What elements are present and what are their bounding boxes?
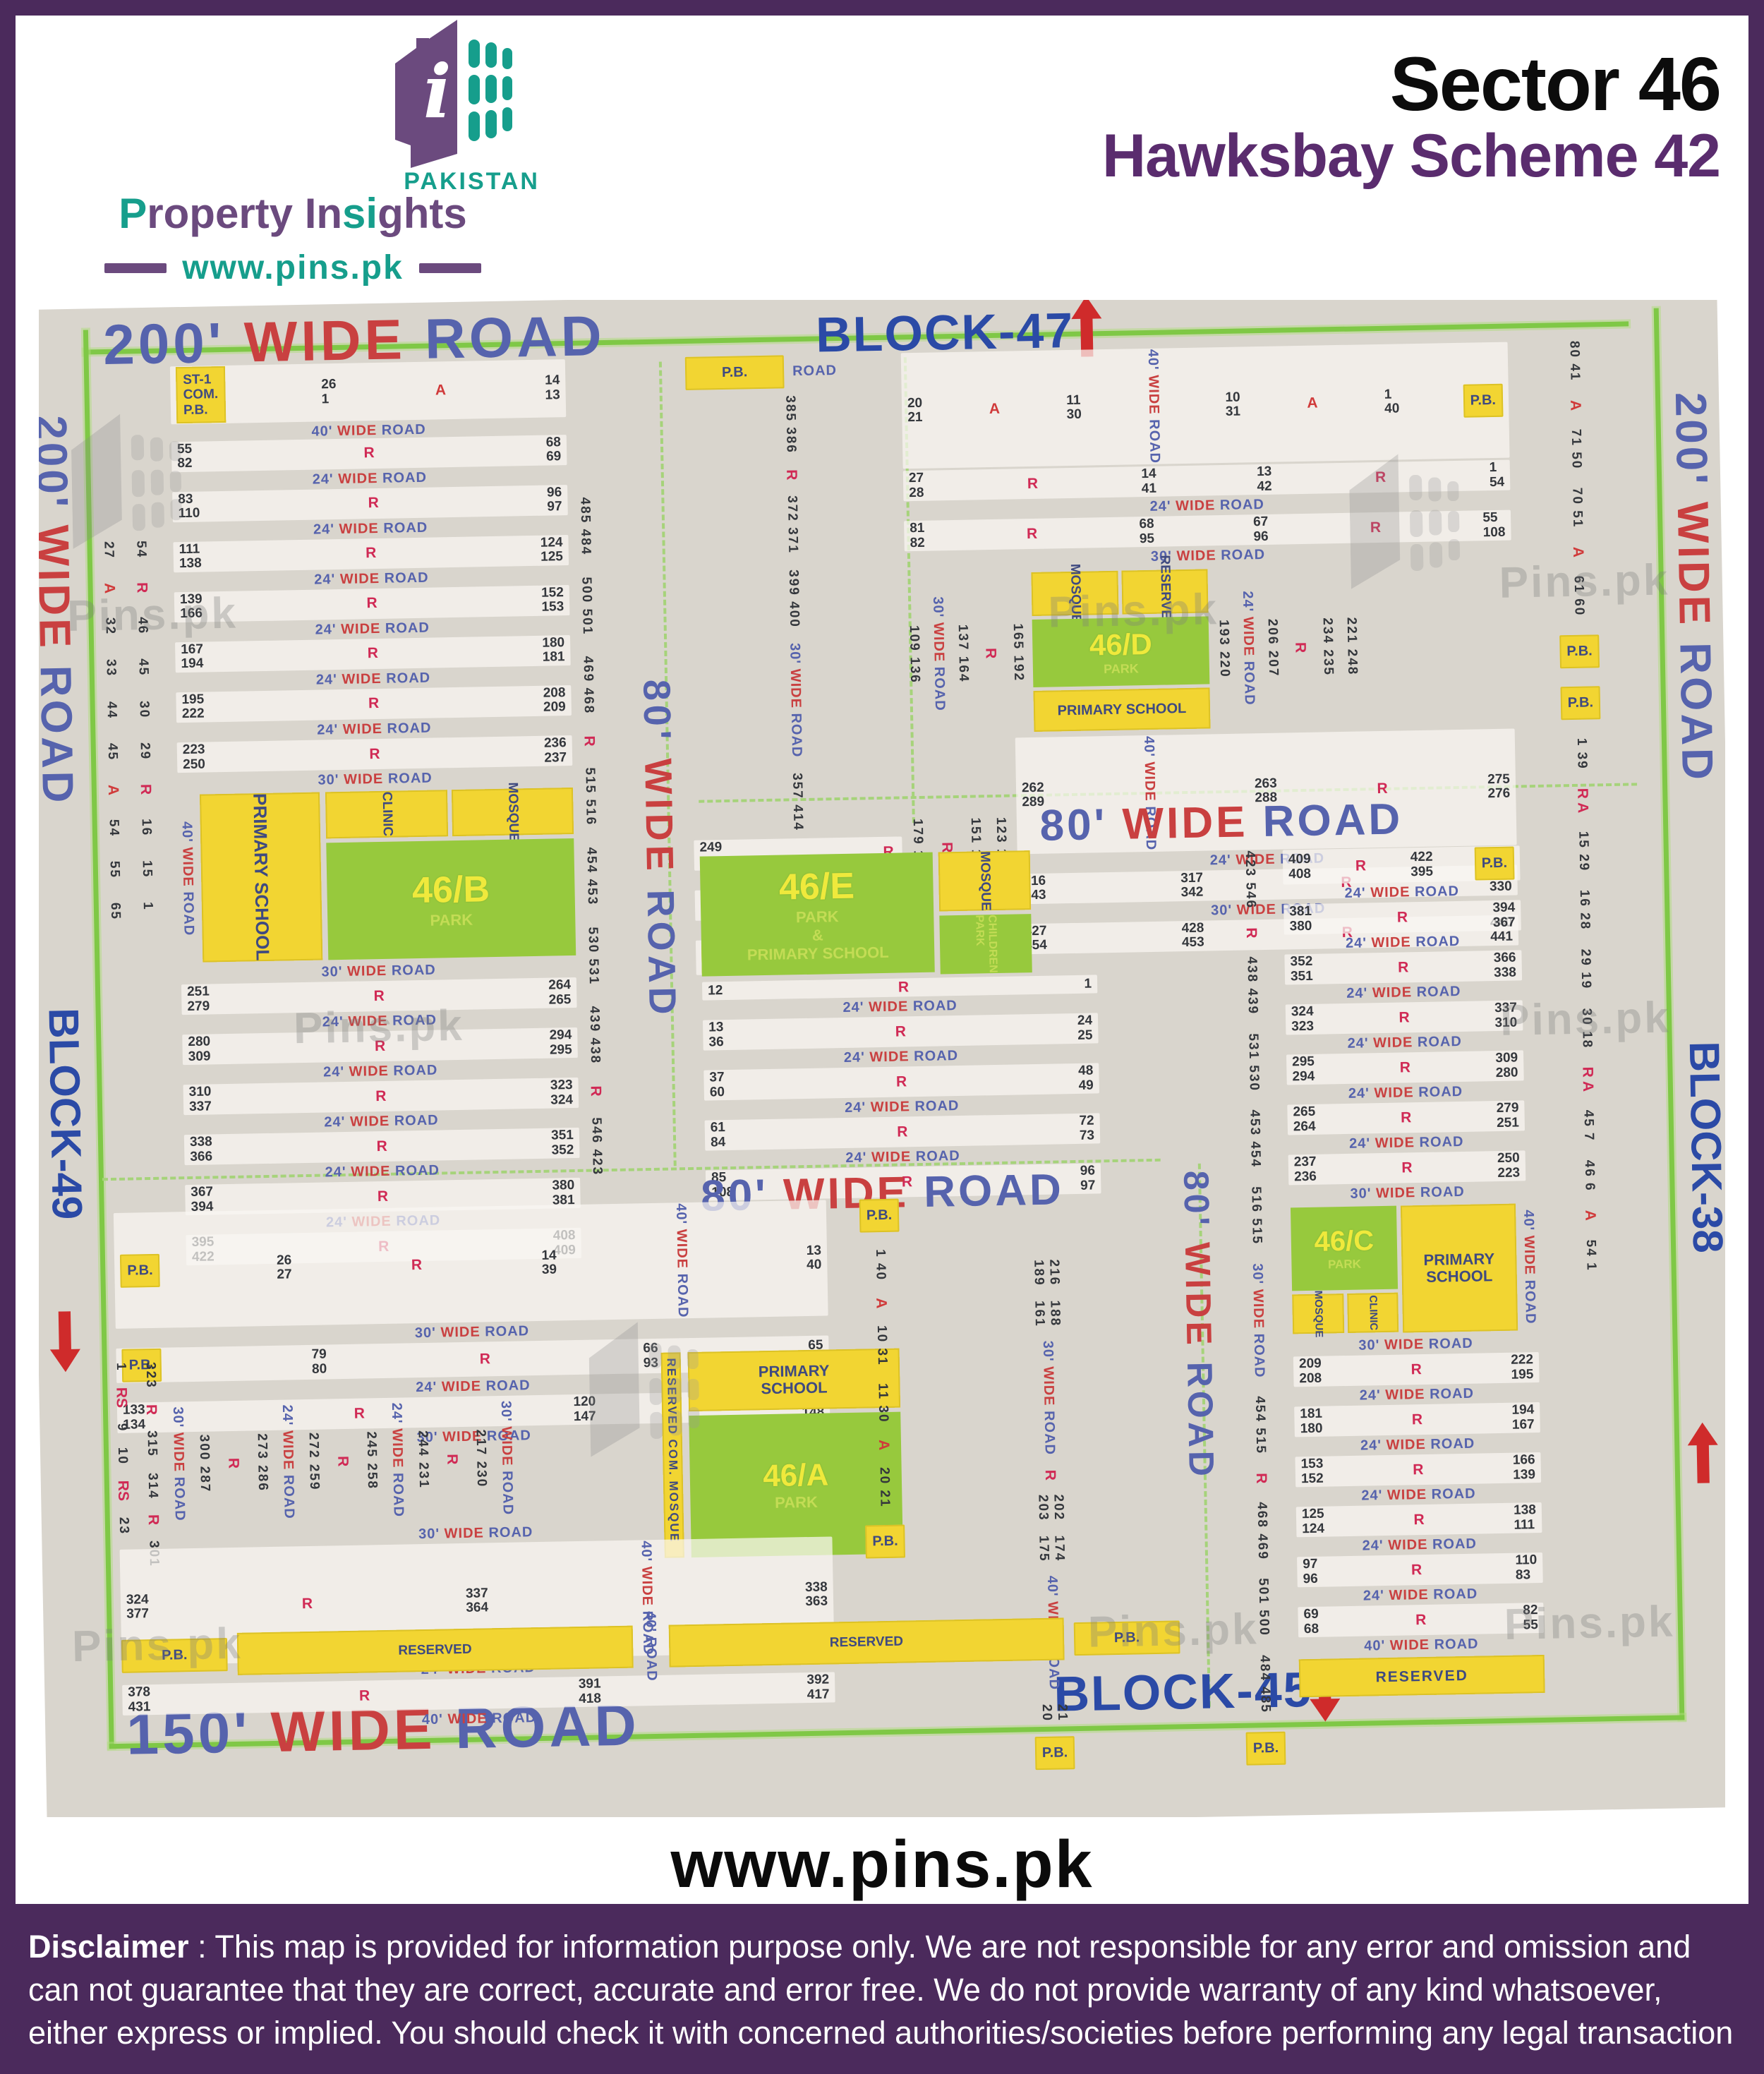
road-label: 40' WIDE ROAD	[178, 795, 197, 963]
road-label-part: 24'	[1360, 1387, 1381, 1404]
plot-number: 223	[183, 742, 205, 757]
plot-number: 152	[1301, 1471, 1324, 1486]
letter-r: R	[356, 1687, 373, 1704]
plot-number: 377	[126, 1607, 149, 1622]
road-label-part: 40'	[422, 1712, 443, 1728]
plot-number-pair: 15	[139, 860, 155, 879]
plot-row: 409408R422395P.B.	[1283, 845, 1521, 884]
road-label-part: 24'	[324, 1114, 345, 1131]
plot-numbers: 352351	[1290, 955, 1312, 984]
plot-number: 110	[1515, 1553, 1537, 1568]
plot-number: 27	[909, 471, 924, 486]
road-label-part: ROAD	[390, 1163, 440, 1179]
plot-number: 280	[188, 1035, 210, 1049]
letter-a: A	[1578, 1210, 1601, 1222]
plot-number: 323	[550, 1078, 573, 1093]
road-label-part: ROAD	[1427, 1536, 1477, 1553]
plot-number: 82	[910, 536, 925, 551]
plot-numbers: 337310	[1494, 1001, 1517, 1031]
page-subtitle: Hawksbay Scheme 42	[1102, 121, 1720, 191]
nw-plot-rows-upper: 5582R686924' WIDE ROAD83110R969724' WIDE…	[171, 435, 573, 790]
plot-number: 54	[1490, 475, 1505, 490]
road-label-part: ROAD	[1216, 547, 1265, 563]
plot-number-pair: 245 258	[363, 1431, 380, 1490]
road-label-part: ROAD	[1411, 934, 1461, 950]
dash-right	[419, 263, 481, 273]
plot-numbers: 409408	[1288, 852, 1311, 882]
road-label-part: 24'	[313, 471, 334, 488]
letter-r: R	[1039, 1469, 1061, 1481]
plot-number-pair: 500 501	[578, 577, 595, 635]
plot-number-pair: 234 235	[1319, 617, 1336, 676]
road-label-part: ROAD	[908, 1165, 1064, 1217]
plot-number: 139	[1513, 1468, 1535, 1483]
road-label: 24' WIDE ROAD	[1297, 1535, 1542, 1555]
road-label-part: WIDE	[866, 1099, 910, 1115]
plot-number: 338	[1494, 965, 1516, 980]
sw-rotated-column: P.B.1 40A10 3111 30A20 21P.B.	[837, 1198, 930, 1665]
plot-numbers: 265264	[1293, 1105, 1315, 1135]
plot-numbers: 180181	[542, 636, 564, 665]
road-label: 24' WIDE ROAD	[279, 1405, 297, 1520]
road-label-part: 24'	[389, 1403, 405, 1424]
road-label-part: WIDE	[864, 999, 908, 1015]
road-label: 40' ROAD	[642, 1611, 660, 1682]
plot-number: 61	[711, 1121, 726, 1135]
road-label-part: 24'	[1344, 885, 1365, 901]
plot-row: 125124R138111	[1296, 1502, 1542, 1537]
plot-number: 14	[541, 1248, 557, 1263]
plot-number: 378	[128, 1685, 150, 1700]
plot-numbers: 6796	[1253, 515, 1269, 544]
plot-number: 68	[546, 435, 562, 450]
park-46c-box: 46/C PARK	[1291, 1206, 1398, 1291]
plot-numbers: 428453	[1181, 921, 1204, 951]
brand-name-part: P	[119, 190, 147, 237]
plot-number: 167	[181, 642, 203, 657]
road-label-part: WIDE	[1379, 1337, 1424, 1353]
road-label-part: 30'	[1350, 1186, 1371, 1202]
plot-numbers: 111138	[179, 542, 201, 572]
road-label-part: WIDE	[498, 1422, 514, 1466]
road-label-part: ROAD	[1429, 1586, 1478, 1603]
plot-numbers: 166139	[1513, 1453, 1535, 1483]
letter-r: R	[366, 745, 383, 762]
plot-number: 138	[179, 557, 202, 572]
plot-number: 180	[1300, 1421, 1323, 1436]
plot-row: 6968R8255	[1298, 1603, 1544, 1637]
road-label-part: 24'	[1349, 1135, 1370, 1152]
plot-numbers: 324377	[126, 1593, 149, 1622]
road-label-part: ROAD	[382, 721, 432, 737]
plot-numbers: 2021	[907, 396, 923, 425]
park-label: PARK	[430, 911, 473, 930]
brand-url: www.pins.pk	[182, 248, 404, 287]
road-label-part: ROAD	[180, 886, 196, 936]
plot-number-pair: COM.	[665, 1440, 680, 1477]
letter-r: R	[1409, 1411, 1426, 1428]
road-label: 24' WIDE ROAD	[1283, 882, 1521, 902]
plot-row: 251279R264265	[181, 977, 577, 1015]
plot-number-pair: 21 20	[1039, 1704, 1070, 1723]
road-label: ROAD	[792, 363, 837, 380]
road-label-part: ROAD	[1430, 1636, 1479, 1653]
letter-r: R	[1398, 1109, 1415, 1126]
pb-box: P.B.	[1074, 1620, 1180, 1656]
park-46b-label: 46/B	[412, 868, 490, 912]
plot-number: 82	[177, 457, 193, 471]
plot-number: 338	[805, 1580, 828, 1595]
road-label-part: ROAD	[1248, 795, 1403, 846]
mosque-box: MOSQUE	[1292, 1294, 1344, 1334]
road-label-part: 200'	[39, 415, 77, 510]
road-label-part: ROAD	[380, 620, 430, 637]
plot-number: 48	[1078, 1064, 1094, 1079]
road-label-part: ROAD	[1427, 1486, 1476, 1502]
brand-name-part: roperty	[147, 190, 304, 237]
plot-number: 195	[1511, 1368, 1533, 1382]
road-label: 40' WIDE ROAD	[1298, 1635, 1544, 1655]
plot-numbers: 295294	[1292, 1055, 1315, 1085]
plot-numbers: 1441	[1141, 467, 1156, 496]
plot-number: 208	[1299, 1371, 1322, 1386]
plot-number: 111	[1514, 1518, 1535, 1533]
plot-number: 275	[1487, 773, 1510, 788]
plot-number: 249	[699, 840, 722, 855]
road-label-part: WIDE	[345, 1114, 389, 1130]
brand-name: Property Insights	[44, 189, 542, 238]
plot-number-pair: 15 29	[1575, 831, 1591, 872]
dash-left	[104, 263, 167, 273]
plot-number: 96	[547, 486, 562, 500]
park-46d-box: 46/D PARK	[1032, 617, 1210, 688]
road-label: 24' WIDE ROAD	[1285, 982, 1522, 1002]
plot-number: 138	[1514, 1503, 1536, 1518]
plot-number: 295	[1292, 1055, 1315, 1070]
plot-numbers: 250223	[1497, 1152, 1520, 1181]
road-label-part: ROAD	[39, 650, 82, 806]
park-label: PARK	[1104, 661, 1139, 677]
road-label-part: WIDE	[1521, 1231, 1538, 1275]
letter-r: R	[140, 1404, 162, 1415]
pb-box: P.B.	[1463, 383, 1503, 417]
road-label-part: WIDE	[787, 664, 804, 709]
plot-numbers: 11083	[1515, 1553, 1537, 1583]
plot-number-pair: 453 454	[1246, 1109, 1263, 1168]
plot-number-pair: 1	[140, 902, 155, 911]
plot-number: 55	[1523, 1618, 1539, 1633]
road-label-part: 80'	[1176, 1170, 1217, 1229]
plot-number-pair: 372 371	[784, 495, 801, 554]
plot-row: 153152R166139	[1295, 1452, 1541, 1487]
road-label-part: ROAD	[1426, 1436, 1475, 1452]
children-park-box: CHILDREN PARK	[939, 915, 1032, 975]
arrow-up-icon	[1070, 300, 1103, 357]
road-label-part: ROAD	[911, 1148, 960, 1164]
plot-number: 13	[545, 388, 560, 403]
road-label-part: WIDE	[1040, 1362, 1056, 1406]
plot-number-pair: 1	[113, 1363, 128, 1372]
letter-r: R	[1413, 1612, 1430, 1629]
plot-number-pair: 221 248	[1343, 617, 1360, 675]
plot-number: 95	[1140, 532, 1155, 547]
plot-number-pair: 174 175	[1035, 1535, 1067, 1562]
plot-number: 352	[1290, 955, 1312, 970]
plot-number-pair: 1 40	[872, 1249, 888, 1281]
primary-school-label: SCHOOL	[251, 882, 273, 961]
road-label-part: 24'	[845, 1099, 866, 1116]
primary-school-label: PRIMARY	[759, 1362, 830, 1380]
plot-number-pair: 193 220	[1216, 620, 1233, 678]
plot-numbers: 264265	[548, 978, 571, 1008]
pb-box: P.B.	[121, 1638, 228, 1673]
road-label-part: 30'	[498, 1401, 514, 1422]
road-label-part: 40'	[643, 1611, 659, 1632]
plot-number: 310	[1494, 1015, 1517, 1030]
letter-r: R	[1367, 519, 1384, 536]
road-label-part: WIDE	[332, 423, 377, 439]
plot-row: 338366R351352	[184, 1128, 580, 1165]
plot-number: 280	[1496, 1066, 1518, 1080]
plot-numbers: 394367	[1492, 901, 1515, 931]
plot-row: 352351R366338	[1284, 950, 1522, 984]
plot-row: 167194R180181	[175, 635, 571, 673]
letter-r-a: R A	[1571, 788, 1594, 813]
plot-numbers: 7273	[1079, 1114, 1094, 1143]
plot-number-pair: 55	[107, 861, 122, 879]
plot-row: 381380R394367	[1283, 900, 1521, 934]
plot-row: 209208R222195	[1293, 1352, 1540, 1387]
plot-number: 1	[1084, 977, 1092, 991]
road-label-part: ROAD	[1415, 1184, 1465, 1200]
plot-number-pair: 65	[107, 903, 123, 921]
road-label-part: WIDE	[436, 1325, 481, 1341]
plot-number-pair: 300 287	[196, 1435, 213, 1493]
plot-number: 363	[805, 1595, 828, 1610]
road-label-part: WIDE	[342, 963, 387, 979]
plot-numbers: 5582	[177, 442, 193, 471]
road-label-part: WIDE	[1382, 1437, 1426, 1453]
plot-number: 309	[1495, 1051, 1518, 1066]
plot-numbers: 209208	[1299, 1357, 1322, 1387]
road-label-part: ROAD	[639, 874, 684, 1019]
plot-number-pair: 10	[114, 1447, 130, 1466]
plot-number: 83	[1516, 1568, 1531, 1583]
primary-school-label: PRIMARY	[1423, 1250, 1494, 1269]
plot-number: 97	[1303, 1557, 1318, 1572]
primary-school-label: SCHOOL	[761, 1379, 828, 1397]
road-label-part: WIDE	[279, 1426, 296, 1471]
road-label-part: 80'	[635, 679, 679, 744]
road-label-part: 200'	[1666, 392, 1716, 487]
road-label-part: ROAD	[792, 363, 837, 379]
letter-r: R	[372, 1037, 389, 1054]
letter-r: R	[780, 469, 802, 481]
plot-number-pair: 9	[114, 1423, 129, 1432]
plot-numbers: 237236	[1294, 1155, 1317, 1185]
mosque-box: MOSQUE	[938, 850, 1032, 912]
pb-box: P.B.	[865, 1524, 905, 1558]
road-label-part: WIDE	[344, 1013, 388, 1030]
road-label-part: 40'	[1044, 1576, 1061, 1597]
bottom-center-column: 216 189188 16130' WIDE ROADR202 203174 1…	[940, 1258, 1159, 1663]
reserved-box: RESERVED	[1299, 1655, 1545, 1697]
plot-number: 31	[1226, 405, 1241, 420]
park-46e-box: 46/E PARK & PRIMARY SCHOOL	[700, 852, 935, 977]
plot-numbers: 391418	[579, 1677, 601, 1707]
plot-number: 351	[551, 1128, 574, 1143]
primary-school-box: PRIMARY SCHOOL	[1401, 1204, 1518, 1333]
plot-numbers: 380381	[552, 1178, 574, 1208]
road-label-part: WIDE	[1368, 1035, 1413, 1051]
number-column: 54R46453029R16151	[129, 541, 163, 1176]
plot-number-pair: 399 400	[785, 569, 802, 628]
road-label: 200' WIDE ROAD	[1665, 392, 1722, 783]
road-label: 40' WIDE ROAD	[1520, 1203, 1538, 1330]
plot-number: 36	[708, 1035, 724, 1050]
plot-numbers: 1130	[1066, 393, 1082, 422]
plot-number: 27	[277, 1268, 292, 1283]
road-label-part: ROAD	[909, 1048, 958, 1064]
plot-numbers: 1031	[1225, 390, 1240, 419]
svg-text:i: i	[423, 48, 452, 135]
road-label: 30' WIDE ROAD	[1293, 1334, 1538, 1354]
plot-row: 237236R250223	[1288, 1150, 1526, 1185]
road-label-part: 24'	[1362, 1538, 1383, 1554]
plot-number-pair: 357 414	[789, 773, 806, 831]
plot-number: 394	[1492, 901, 1515, 916]
plot-number: 367	[191, 1186, 213, 1200]
plot-numbers: 8255	[1523, 1603, 1538, 1632]
road-label-part: WIDE	[337, 671, 382, 687]
plot-number: 237	[1294, 1155, 1317, 1170]
plot-number-pair: 515 516	[581, 768, 598, 826]
plot-number-pair: 45	[135, 658, 150, 677]
road-label-part: WIDE	[1178, 1229, 1219, 1349]
plot-numbers: 6869	[546, 435, 562, 464]
road-label: 24' WIDE ROAD	[1284, 932, 1521, 952]
plot-number: 55	[177, 442, 193, 457]
road-label-part: WIDE	[1367, 984, 1412, 1001]
plot-number: 14	[545, 374, 560, 389]
plot-number: 181	[543, 651, 565, 665]
plot-numbers: 6184	[711, 1121, 726, 1150]
plot-number: 317	[1180, 871, 1203, 886]
plot-number: 60	[710, 1085, 725, 1100]
road-label-part: 30'	[418, 1526, 440, 1543]
plot-number: 194	[181, 657, 203, 672]
road-label-part: WIDE	[1367, 934, 1411, 951]
plot-number-pair: 244 231	[415, 1430, 432, 1489]
plot-number: 1	[1489, 461, 1497, 476]
letter-r: R	[134, 784, 157, 795]
road-label: 40' WIDE ROAD	[672, 1203, 691, 1318]
road-label-part: WIDE	[170, 1428, 186, 1473]
plot-number: 351	[1291, 969, 1313, 984]
letter-a: A	[97, 583, 120, 594]
road-label-part: ROAD	[910, 1098, 960, 1114]
plot-numbers: 153152	[1300, 1457, 1323, 1487]
road-label-part: 30'	[1358, 1337, 1379, 1353]
plot-number: 73	[1080, 1128, 1095, 1143]
road-label: 24' WIDE ROAD	[1295, 1435, 1540, 1454]
pb-box: P.B.	[859, 1199, 899, 1233]
plot-number: 264	[548, 978, 571, 993]
road-label-part: WIDE	[639, 1562, 655, 1606]
letter-r: R	[361, 445, 377, 462]
plot-number-pair: 45 7	[1581, 1110, 1597, 1142]
plot-number: 251	[187, 984, 210, 999]
plot-number-pair: 484 485	[1257, 1655, 1274, 1713]
plot-number: 279	[187, 999, 210, 1014]
plot-number: 180	[542, 636, 564, 651]
letter-r: R	[1025, 476, 1041, 493]
plot-numbers: 152153	[541, 586, 564, 615]
road-label-part: 40'	[311, 423, 332, 440]
road-label-part: WIDE	[1383, 1537, 1427, 1553]
plot-number-pair: 206 207	[1264, 619, 1281, 677]
letter-r-a: R A	[1576, 1066, 1599, 1092]
plot-number: 294	[1292, 1069, 1315, 1084]
vertical-80-road-label: 80' WIDE ROAD	[1176, 1170, 1222, 1480]
park-46e-label: 46/E	[778, 865, 854, 909]
road-label-part: WIDE	[338, 721, 382, 737]
letter-r: R	[1250, 1473, 1272, 1484]
letter-r: R	[1410, 1512, 1427, 1529]
letter-r: R	[409, 1257, 425, 1274]
disclaimer-panel: Disclaimer : This map is provided for in…	[0, 1904, 1764, 2074]
plot-number: 264	[1293, 1119, 1316, 1134]
plot-numbers: 378431	[128, 1685, 150, 1715]
plot-number-pair: 29	[137, 742, 152, 761]
plot-number: 153	[1300, 1457, 1323, 1472]
plot-number: 323	[1291, 1019, 1314, 1034]
plot-number-pair: 45	[104, 742, 120, 761]
road-label-part: ROAD	[1413, 1034, 1462, 1050]
road-label-part: WIDE	[335, 571, 380, 587]
letter-r: R	[893, 1073, 910, 1090]
plot-number: 21	[907, 411, 923, 426]
letter-r: R	[1353, 857, 1370, 874]
plot-number: 251	[1497, 1116, 1519, 1131]
pb-box: P.B.	[1559, 634, 1600, 668]
primary-school-label: SCHOOL	[1126, 701, 1187, 718]
pb-box: P.B.	[1245, 1731, 1286, 1765]
number-column: 385 386R372 371399 40030' WIDE ROAD357 4…	[686, 394, 902, 833]
site-url: www.pins.pk	[0, 1826, 1764, 1903]
pb-box: P.B.	[1474, 847, 1514, 881]
plot-row: 2021A113040' WIDE ROAD1031A140P.B.	[901, 342, 1510, 469]
sector-map: 200' WIDE ROAD BLOCK-47 200' WIDE ROAD B…	[39, 300, 1725, 1817]
plot-number: 324	[550, 1093, 573, 1108]
primary-school-label: SCHOOL	[1426, 1267, 1493, 1286]
road-label-part: ROAD	[1413, 1084, 1463, 1100]
letter-r: R	[892, 1023, 909, 1040]
road-label-part: 40'	[1145, 349, 1161, 370]
road-label-part: 30'	[1040, 1341, 1056, 1362]
pb-box: P.B.	[120, 1253, 160, 1287]
plot-row: 265264R279251	[1287, 1100, 1525, 1135]
plot-number-pair: 454 515	[1252, 1396, 1269, 1454]
letter-r: R	[365, 495, 382, 512]
plot-number-pair: 531 530	[1245, 1033, 1262, 1092]
plot-number: 237	[544, 751, 567, 766]
letter-r: R	[1395, 959, 1412, 976]
plot-number-pair: 217 230	[473, 1430, 490, 1488]
road-label-part: WIDE	[389, 1424, 405, 1469]
plot-numbers: 138111	[1514, 1503, 1536, 1533]
plot-number-pair: 33	[102, 659, 118, 677]
